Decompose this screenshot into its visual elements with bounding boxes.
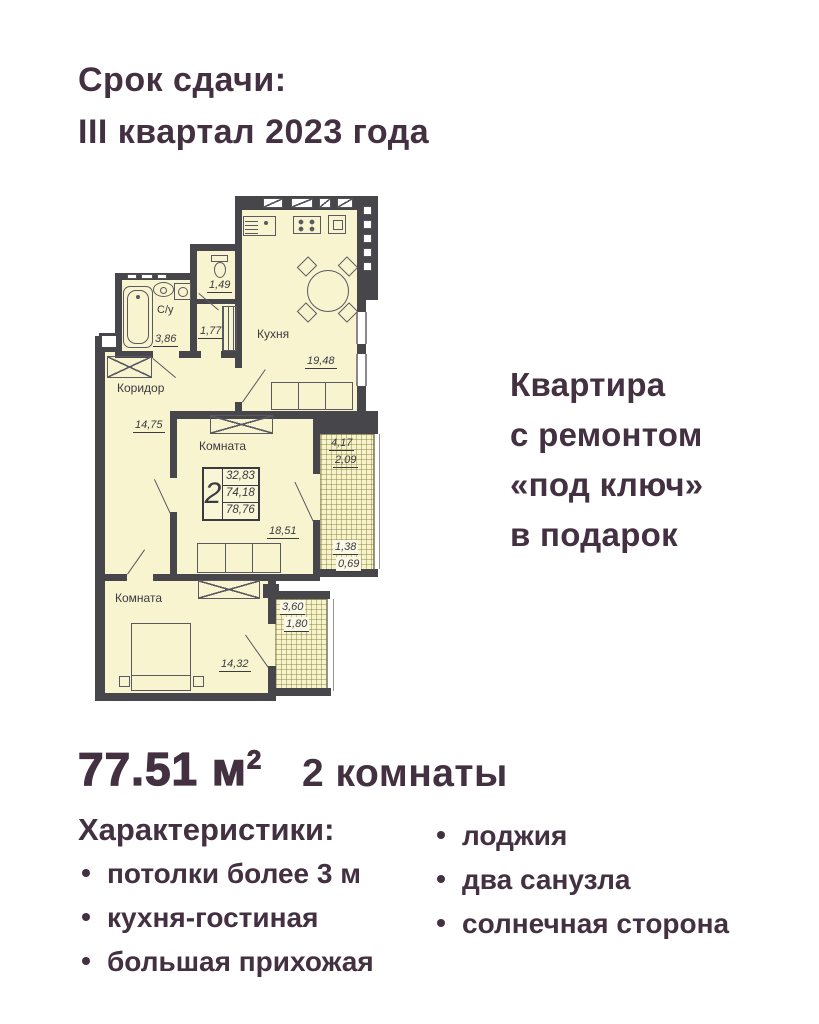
area-value: 77.51 м2 [78,743,262,795]
area-number: 77.51 м [78,743,247,795]
duct-icon [363,220,372,229]
list-item: кухня-гостиная [82,902,374,946]
duct-icon [127,274,137,279]
list-item: лоджия [437,820,729,864]
duct-icon [157,274,167,279]
wardrobe [107,356,152,378]
dining-table [307,270,349,312]
wall-segment [313,520,320,574]
wall-segment [95,336,105,701]
wall-segment [320,419,378,434]
duct-icon [363,234,372,243]
promo-line1: Квартира [510,360,703,410]
list-item-label: два санузла [462,864,630,896]
bathtub [123,286,153,348]
living-area: 32,83 [223,469,258,486]
list-item-label: большая прихожая [107,946,374,978]
wardrobe [198,580,260,599]
window [356,312,367,344]
bullet-icon [82,957,90,965]
room1-label: Комната [199,439,246,453]
wall-segment [105,574,127,581]
list-item-label: лоджия [462,820,567,852]
bed [131,623,191,691]
wall-segment [221,351,238,358]
bullet-icon [82,913,90,921]
loggia-mid-area-half: 0,69 [336,557,361,572]
rooms-count: 2 комнаты [302,752,508,796]
loggia-bottom-area-half: 1,80 [284,617,309,632]
kitchen-area: 19,48 [305,354,337,369]
vent-icon [337,198,353,208]
loggia-top-area-full: 4,17 [329,436,354,451]
wardrobe [210,415,273,434]
kitchen-sink [243,216,276,236]
area-superscript: 2 [247,745,262,775]
promo-line4: в подарок [510,510,703,560]
bullet-icon [82,869,90,877]
loggia-top-glazing [374,434,380,569]
room2-area: 14,32 [219,657,251,672]
wall-segment [197,299,235,304]
bullet-icon [437,919,445,927]
list-item: солнечная сторона [437,908,729,952]
wall-segment [313,419,320,474]
deadline-line2: III квартал 2023 года [78,106,429,158]
total-area: 77.51 м2 [78,742,262,796]
wall-segment [170,411,378,419]
toilet-tank [211,255,228,262]
duct-icon [363,248,372,257]
wall-segment [170,418,177,478]
list-item: потолки более 3 м [82,858,374,902]
vent-icon [291,198,313,208]
vent-icon [319,198,331,208]
vent-icon [263,198,283,208]
wall-segment [170,512,177,574]
duct-icon [363,262,372,271]
total-area-value: 78,76 [223,503,258,519]
list-item-label: потолки более 3 м [107,858,361,890]
kitchen-appliance [328,215,346,234]
wall-segment [190,244,238,251]
room2-label: Комната [115,591,162,605]
wall-segment [273,688,331,696]
nightstand [193,676,204,687]
deadline-heading: Срок сдачи: III квартал 2023 года [78,54,429,158]
characteristics-list-left: потолки более 3 м кухня-гостиная большая… [82,858,374,990]
floorplan: Кухня 19,48 1,49 С/у 3,86 1,77 Коридор 1… [95,196,405,706]
duct-icon [141,274,153,279]
wc-area: 1,49 [207,278,232,293]
list-item: большая прихожая [82,946,374,990]
promo-line2: с ремонтом [510,410,703,460]
window [356,354,367,386]
corridor-label: Коридор [117,381,164,395]
areas-column: 32,83 74,18 78,76 [223,469,258,519]
promo-line3: «под ключ» [510,460,703,510]
flyer-page: { "colors": { "accent": "#433041", "floo… [0,0,819,1024]
deadline-line1: Срок сдачи: [78,54,429,106]
bullet-icon [437,875,445,883]
bathroom-label: С/у [157,304,174,316]
duct-icon [363,206,372,215]
kitchen-label: Кухня [257,327,289,341]
loggia-top-area-half: 2,09 [333,453,358,468]
nightstand [119,676,130,687]
room1-area: 18,51 [267,524,299,539]
closet-sliding-door [222,306,237,351]
loggia-bottom-area-full: 3,60 [280,600,305,615]
list-item: два санузла [437,864,729,908]
characteristics-list-right: лоджия два санузла солнечная сторона [437,820,729,952]
rooms-number: 2 [204,469,223,519]
list-item-label: кухня-гостиная [107,902,318,934]
closet-area: 1,77 [198,324,223,339]
apartment-area: 74,18 [223,486,258,503]
wall-segment [190,244,197,358]
entrance-door [99,333,119,350]
apartment-info-box: 2 32,83 74,18 78,76 [202,467,260,521]
room-sofa [197,543,281,573]
bath-sink [153,282,174,297]
list-item-label: солнечная сторона [462,908,729,940]
bathroom-area: 3,86 [153,332,178,347]
stove [293,216,321,234]
characteristics-title: Характеристики: [78,812,334,848]
corridor-area: 14,75 [133,418,165,433]
loggia-bottom-glazing [327,599,334,691]
wall-segment [179,351,201,358]
wall-segment [275,591,330,599]
wall-segment [105,693,275,701]
promo-text: Квартира с ремонтом «под ключ» в подарок [510,360,703,560]
bullet-icon [437,831,445,839]
loggia-mid-area-full: 1,38 [333,540,358,555]
washing-machine [174,283,191,300]
kitchen-sofa [271,382,353,410]
